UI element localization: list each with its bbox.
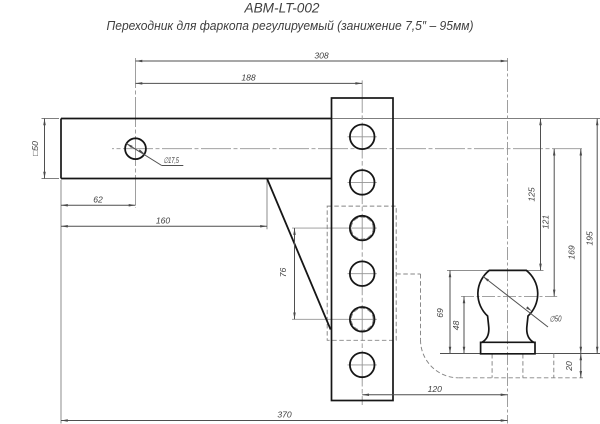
svg-text:∅50: ∅50 [550,315,562,324]
svg-text:20: 20 [564,361,574,372]
svg-text:62: 62 [93,195,103,205]
svg-text:188: 188 [241,73,256,83]
svg-text:76: 76 [278,268,288,278]
svg-text:308: 308 [314,50,329,60]
svg-text:Переходник для фаркопа регулир: Переходник для фаркопа регулируемый (зан… [107,19,474,33]
svg-text:195: 195 [585,231,595,246]
svg-text:АВМ-LT-002: АВМ-LT-002 [243,1,319,16]
svg-text:69: 69 [435,308,445,318]
svg-text:48: 48 [451,321,461,331]
svg-text:169: 169 [567,245,577,260]
svg-text:121: 121 [541,215,551,230]
svg-text:370: 370 [277,409,292,419]
svg-text:125: 125 [526,187,536,202]
svg-text:∅17,5: ∅17,5 [164,156,180,165]
svg-text:□50: □50 [30,141,40,156]
svg-text:160: 160 [156,215,171,225]
svg-text:120: 120 [428,384,443,394]
